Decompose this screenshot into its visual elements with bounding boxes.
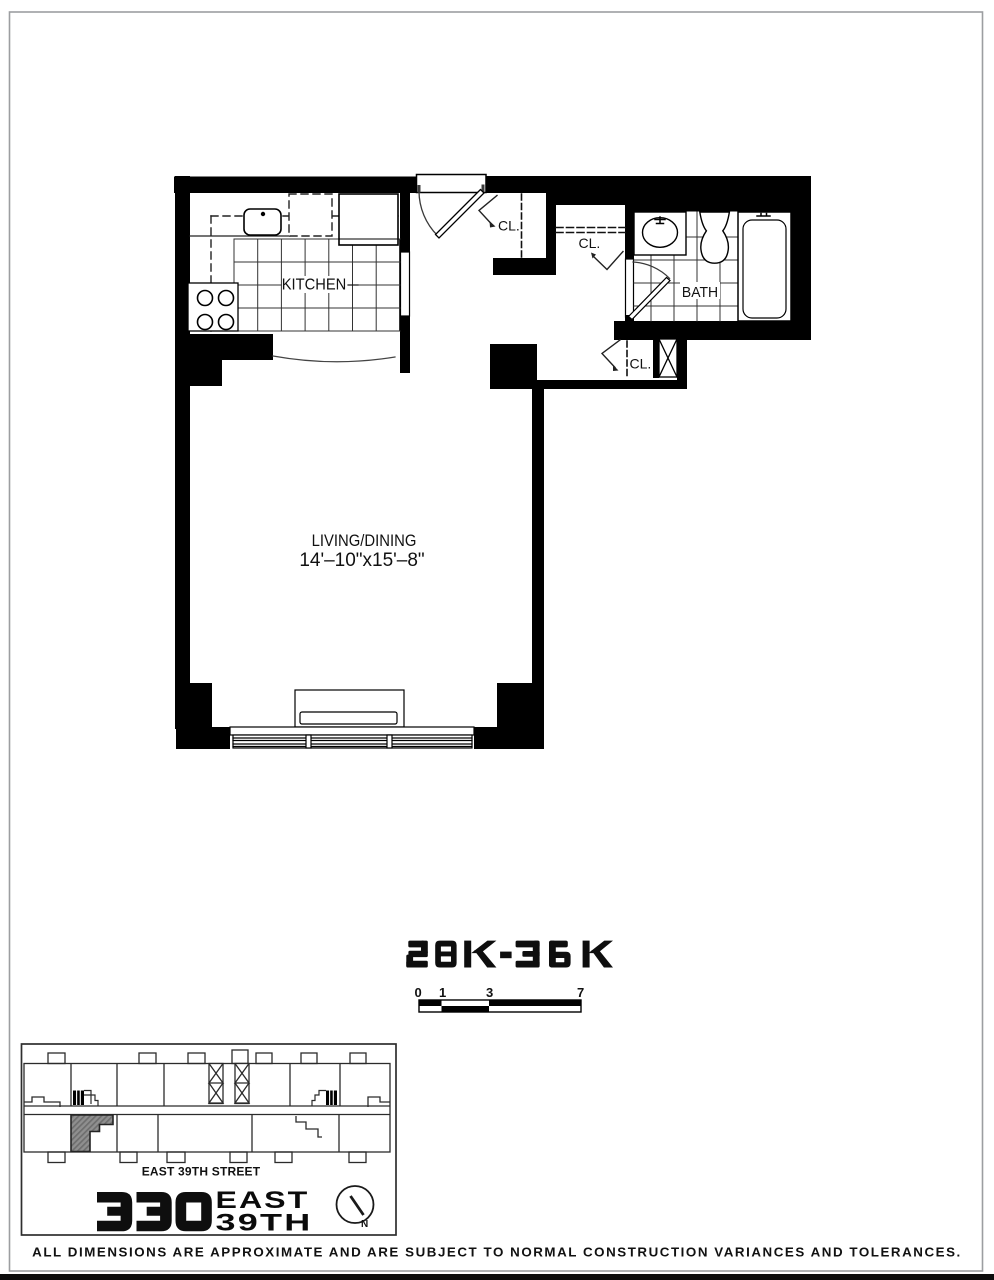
svg-text:ALL DIMENSIONS ARE APPROXIMATE: ALL DIMENSIONS ARE APPROXIMATE AND ARE S… (32, 1245, 962, 1260)
svg-text:1: 1 (439, 985, 446, 1000)
svg-text:14'–10"x15'–8": 14'–10"x15'–8" (299, 550, 424, 571)
svg-text:CL.: CL. (579, 235, 601, 251)
svg-text:N: N (361, 1219, 368, 1230)
svg-text:39TH: 39TH (216, 1209, 313, 1236)
svg-text:7: 7 (577, 985, 584, 1000)
svg-text:BATH: BATH (682, 285, 718, 302)
svg-text:EAST 39TH STREET: EAST 39TH STREET (142, 1165, 261, 1179)
svg-text:CL.: CL. (630, 356, 652, 372)
svg-text:0: 0 (415, 985, 422, 1000)
svg-text:KITCHEN: KITCHEN (282, 276, 347, 294)
svg-text:3: 3 (486, 985, 493, 1000)
svg-text:CL.: CL. (498, 218, 520, 234)
svg-text:LIVING/DINING: LIVING/DINING (312, 532, 417, 550)
